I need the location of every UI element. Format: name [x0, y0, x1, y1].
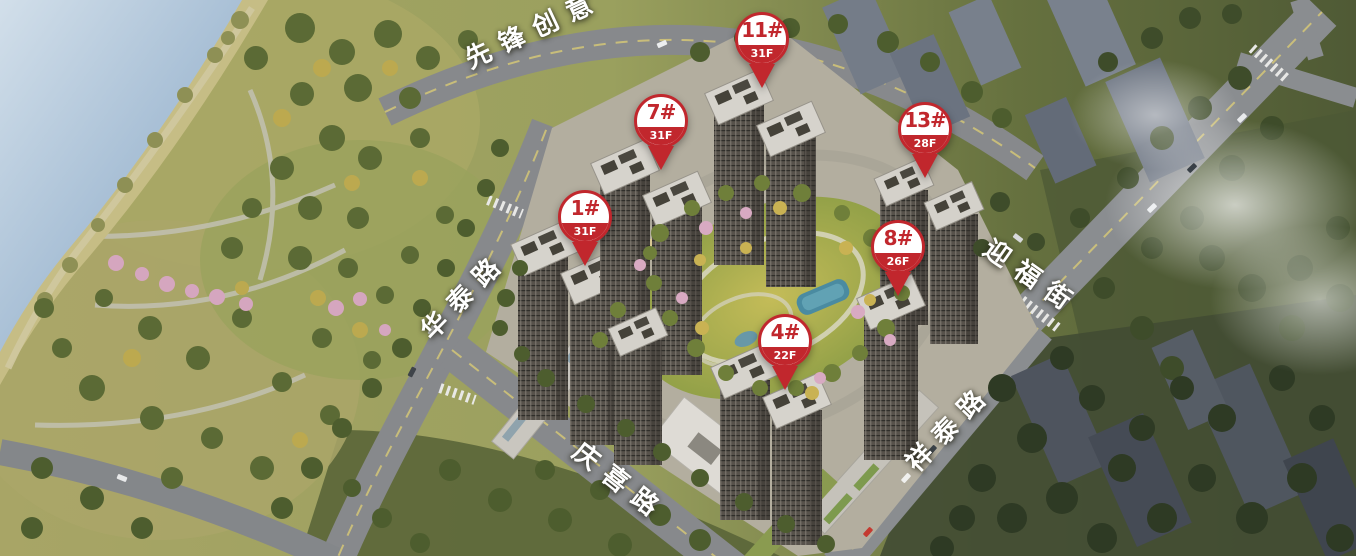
pin-pointer-icon [772, 366, 798, 390]
pin-pointer-icon [749, 64, 775, 88]
building-pin-4[interactable]: 4# 22F [758, 314, 812, 390]
building-pin-7[interactable]: 7# 31F [634, 94, 688, 170]
pin-pointer-icon [572, 242, 598, 266]
building-pin-11[interactable]: 11# 31F [735, 12, 789, 88]
pin-circle: 7# 31F [634, 94, 688, 148]
pin-circle: 4# 22F [758, 314, 812, 368]
pin-pointer-icon [885, 272, 911, 296]
pin-circle: 11# 31F [735, 12, 789, 66]
pin-floor-count: 31F [738, 45, 786, 63]
pin-pointer-icon [648, 146, 674, 170]
pin-building-number: 8# [874, 223, 922, 254]
tower-11b [757, 101, 826, 287]
tower-13b [924, 182, 984, 344]
tower-2 [608, 308, 668, 465]
pin-floor-count: 28F [901, 135, 949, 153]
pin-pointer-icon [912, 154, 938, 178]
pin-circle: 8# 26F [871, 220, 925, 274]
pin-building-number: 4# [761, 317, 809, 348]
building-pin-1[interactable]: 1# 31F [558, 190, 612, 266]
pin-floor-count: 31F [637, 127, 685, 145]
masterplan-render [0, 0, 1356, 556]
pin-floor-count: 22F [761, 347, 809, 365]
masterplan-screenshot: 先锋创意华泰路迎福街祥泰路庆喜路 11# 31F 7# 31F 13# 28F … [0, 0, 1356, 556]
pin-building-number: 1# [561, 193, 609, 224]
pin-building-number: 11# [738, 15, 786, 46]
pin-building-number: 7# [637, 97, 685, 128]
pin-building-number: 13# [901, 105, 949, 136]
pin-floor-count: 31F [561, 223, 609, 241]
tower-11a [705, 69, 774, 265]
building-pin-8[interactable]: 8# 26F [871, 220, 925, 296]
pin-floor-count: 26F [874, 253, 922, 271]
tower-4b [763, 373, 832, 545]
pin-circle: 1# 31F [558, 190, 612, 244]
pin-circle: 13# 28F [898, 102, 952, 156]
building-pin-13[interactable]: 13# 28F [898, 102, 952, 178]
